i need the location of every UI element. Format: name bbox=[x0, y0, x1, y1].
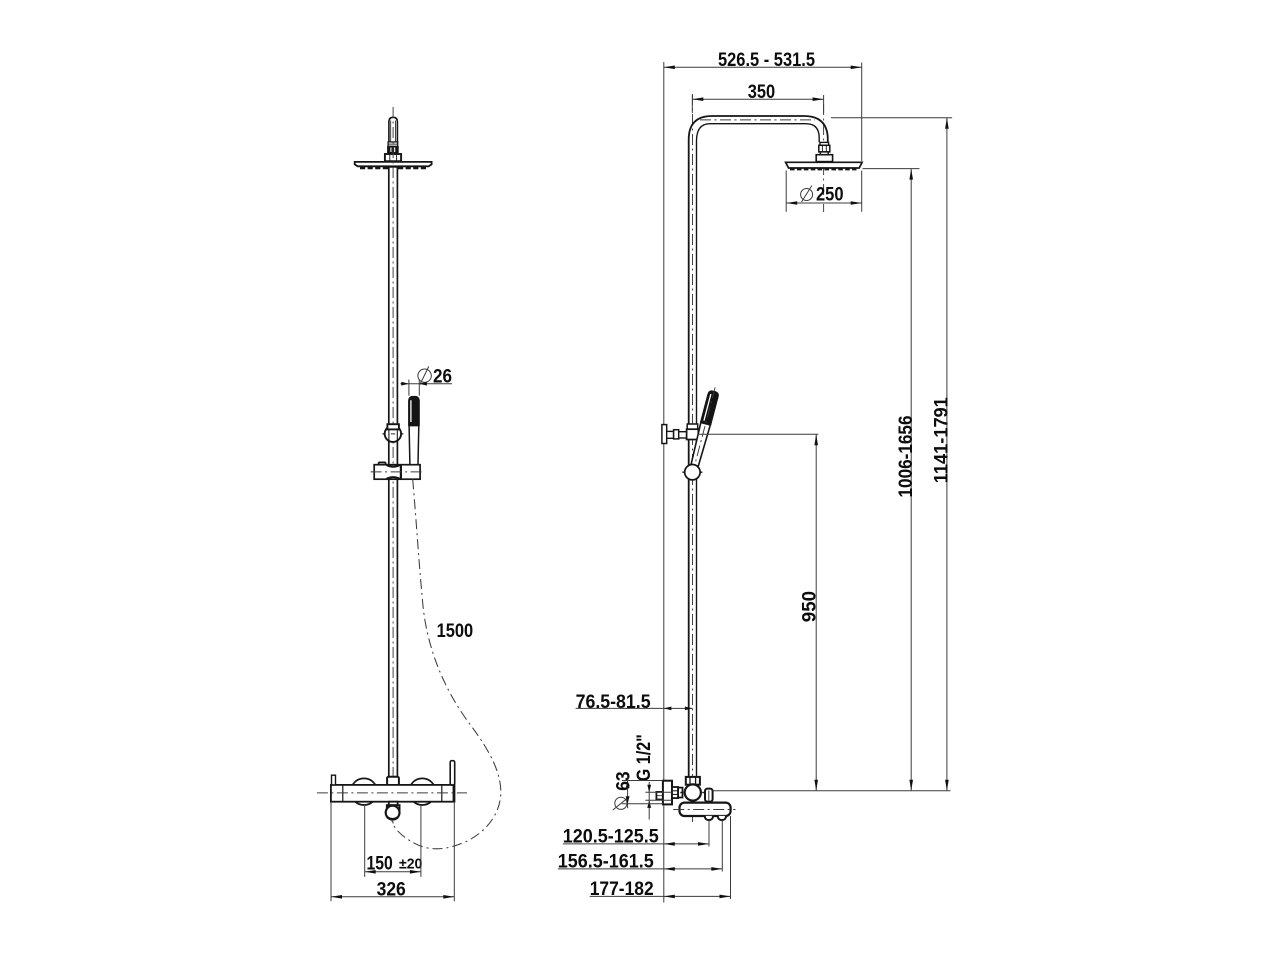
svg-text:250: 250 bbox=[816, 184, 844, 206]
svg-text:1500: 1500 bbox=[437, 620, 474, 642]
svg-text:1006-1656: 1006-1656 bbox=[895, 415, 917, 497]
svg-text:1141-1791: 1141-1791 bbox=[931, 397, 953, 483]
svg-text:76.5-81.5: 76.5-81.5 bbox=[576, 691, 651, 713]
svg-text:63: 63 bbox=[613, 771, 635, 791]
svg-text:950: 950 bbox=[799, 591, 821, 622]
svg-text:G 1/2": G 1/2" bbox=[633, 734, 655, 781]
